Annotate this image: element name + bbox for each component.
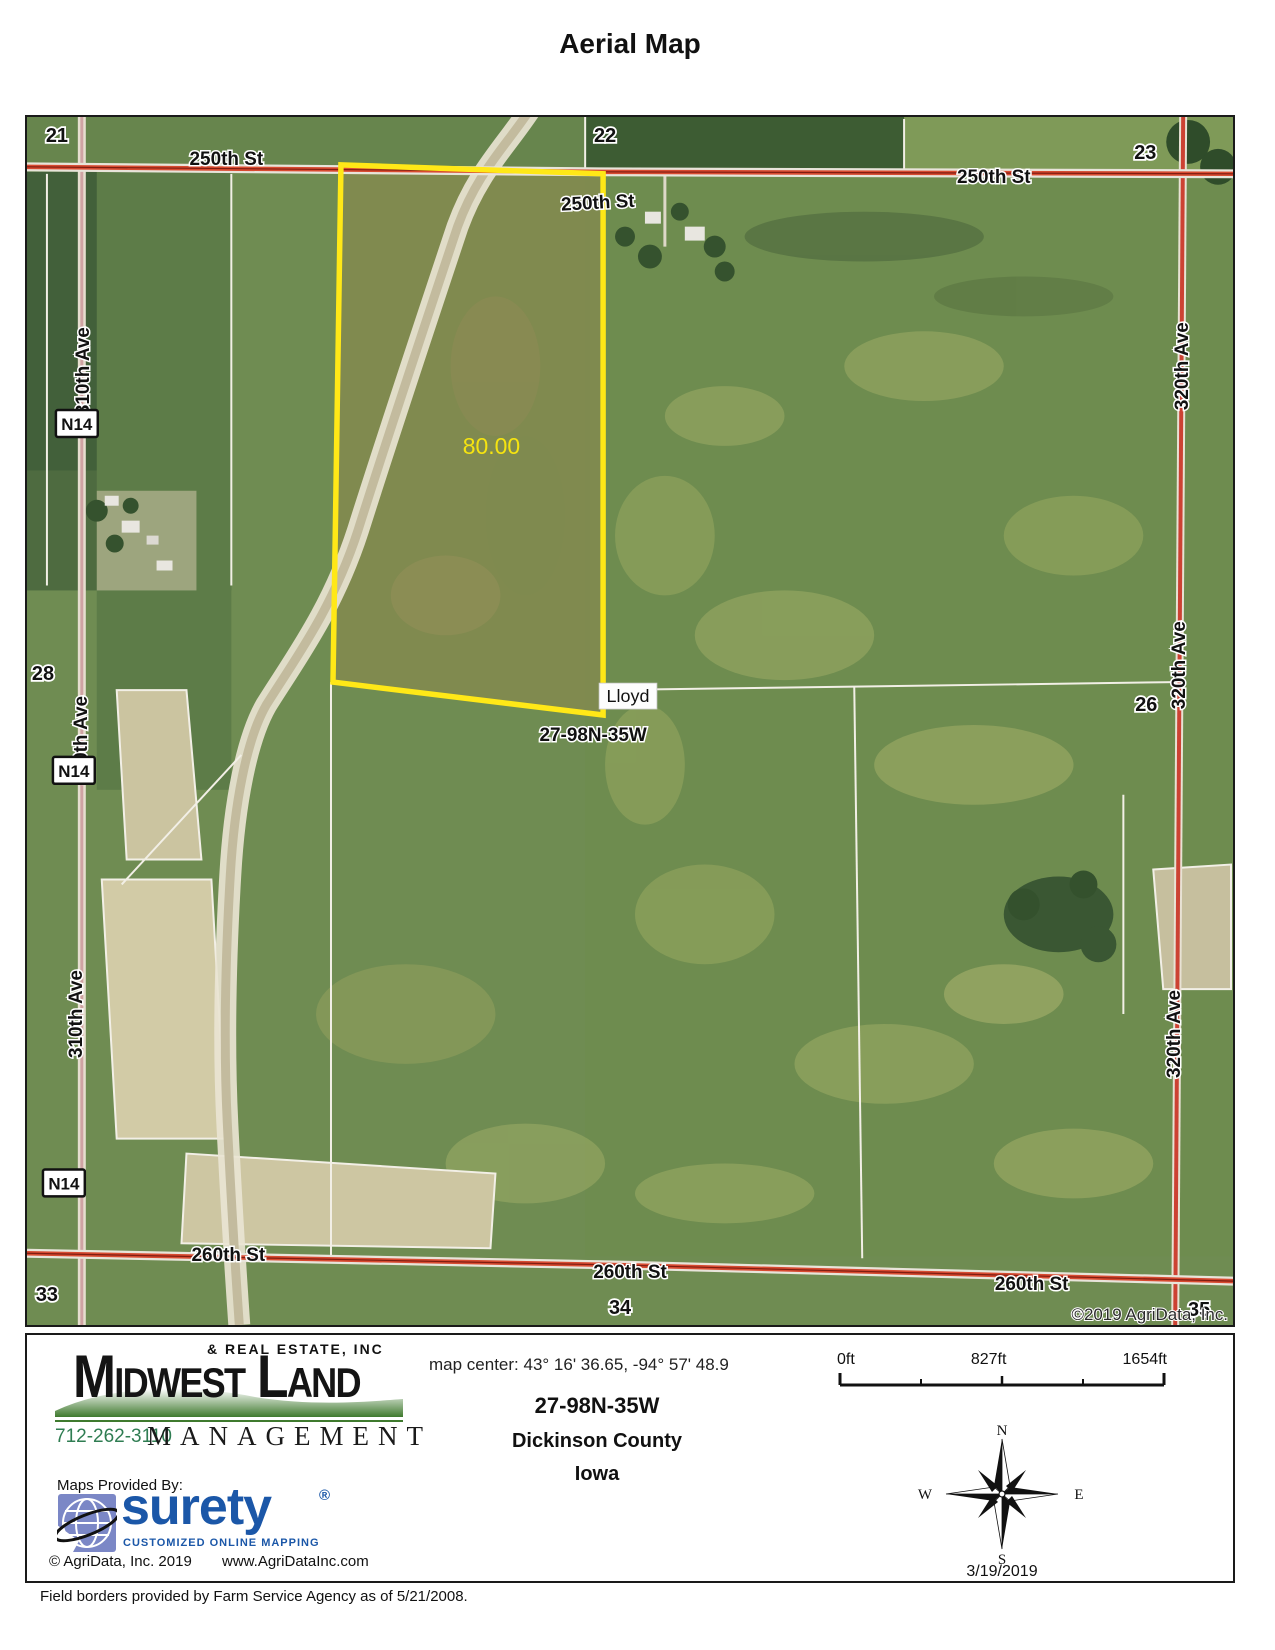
surety-registered-mark: ®: [319, 1487, 330, 1504]
footer-panel: & REAL ESTATE, INC Midwest Land 712-262-…: [25, 1333, 1235, 1583]
township-label: 27-98N-35W: [427, 1393, 767, 1419]
aerial-map-page: Aerial Map: [0, 0, 1275, 1650]
logo-company-name: Midwest Land: [73, 1347, 360, 1407]
surety-tagline: CUSTOMIZED ONLINE MAPPING: [123, 1537, 320, 1549]
section-26-label: 26: [1135, 694, 1157, 716]
n14-shield-mid: N14: [53, 757, 95, 784]
midwest-land-logo: & REAL ESTATE, INC Midwest Land 712-262-…: [55, 1341, 405, 1459]
county-label: Dickinson County: [427, 1430, 767, 1453]
page-title: Aerial Map: [25, 28, 1235, 60]
compass-rose-icon: N S W E: [907, 1419, 1097, 1567]
map-frame: 21 250th St 250th St 250th St 22 23 310t…: [25, 115, 1235, 1327]
svg-text:N14: N14: [48, 1174, 80, 1193]
farmstead: [86, 491, 197, 591]
owner-label: Lloyd: [607, 686, 650, 706]
compass-star: [946, 1439, 1058, 1549]
field-borders-note: Field borders provided by Farm Service A…: [40, 1588, 468, 1605]
svg-text:N14: N14: [61, 415, 93, 434]
road-250th-label-mid: 250th St: [561, 191, 636, 216]
road-250th-label-east: 250th St: [957, 167, 1031, 188]
section-28-label: 28: [32, 663, 54, 685]
location-block: 27-98N-35W Dickinson County Iowa: [427, 1393, 767, 1486]
ave-320th-label-mid: 320th Ave: [1169, 621, 1190, 709]
ave-320th-label-top: 320th Ave: [1172, 322, 1193, 410]
compass-n-label: N: [997, 1423, 1008, 1439]
parcel-acreage-label: 80.00: [463, 433, 520, 459]
ave-310th-label-top: 310th Ave: [73, 327, 94, 415]
scale-mid-label: 827ft: [971, 1351, 1007, 1369]
scale-zero-label: 0ft: [837, 1351, 855, 1369]
surety-logo: surety ® CUSTOMIZED ONLINE MAPPING: [57, 1493, 377, 1555]
n14-shield-bottom: N14: [43, 1170, 85, 1197]
map-center-coordinates: map center: 43° 16' 36.65, -94° 57' 48.9: [429, 1355, 729, 1375]
surety-brand-name: surety: [121, 1481, 271, 1533]
aerial-map-canvas: 21 250th St 250th St 250th St 22 23 310t…: [27, 117, 1233, 1325]
map-date: 3/19/2019: [907, 1563, 1097, 1581]
ave-310th-label-bottom: 310th Ave: [66, 970, 87, 1058]
agridata-website: www.AgriDataInc.com: [222, 1553, 369, 1570]
road-260th-label-mid: 260th St: [593, 1262, 667, 1283]
road-260th-label-west: 260th St: [192, 1245, 266, 1266]
svg-text:N14: N14: [58, 762, 90, 781]
map-copyright: ©2019 AgriData, Inc.: [1071, 1305, 1228, 1324]
globe-icon: [57, 1493, 117, 1553]
road-260th-label-east: 260th St: [995, 1274, 1069, 1295]
section-22-label: 22: [594, 125, 616, 147]
owner-label-box: Lloyd: [599, 683, 657, 709]
section-21-label: 21: [46, 125, 68, 147]
logo-management-line: MANAGEMENT: [147, 1421, 432, 1452]
compass-w-label: W: [918, 1487, 933, 1503]
state-label: Iowa: [427, 1463, 767, 1486]
scale-max-label: 1654ft: [1123, 1351, 1167, 1369]
ave-320th-label-bottom: 320th Ave: [1164, 990, 1185, 1078]
township-map-label: 27-98N-35W: [539, 725, 646, 746]
agridata-copyright: © AgriData, Inc. 2019: [49, 1553, 192, 1570]
n14-shield-top: N14: [56, 410, 98, 437]
scale-bar: 0ft 827ft 1654ft: [837, 1351, 1167, 1396]
section-34-label: 34: [609, 1297, 631, 1319]
compass-e-label: E: [1074, 1487, 1083, 1503]
scale-bar-graphic: [837, 1369, 1167, 1391]
section-33-label: 33: [36, 1284, 58, 1306]
section-23-label: 23: [1134, 142, 1156, 164]
road-250th-label-west: 250th St: [190, 149, 264, 170]
